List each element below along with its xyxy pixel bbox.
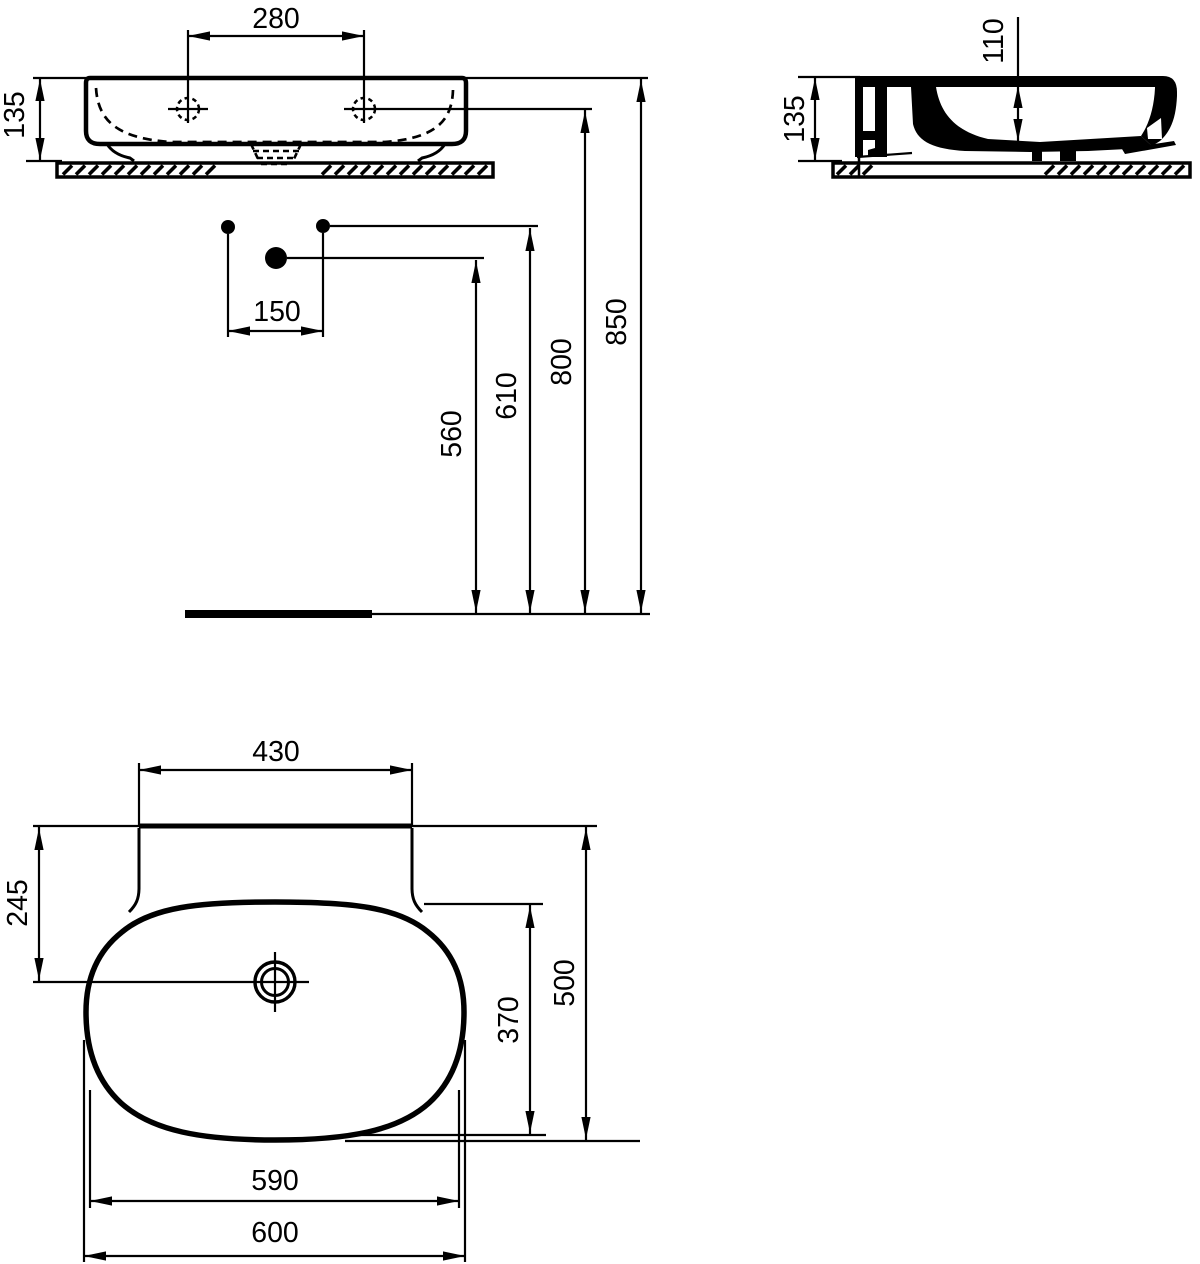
arrowhead: [581, 828, 590, 850]
countertop-hatch-right: [1045, 166, 1184, 175]
dim-basin-height-front: 135: [0, 78, 62, 161]
countertop-hatch-left: [837, 166, 872, 175]
dim-label-135-front: 135: [0, 91, 31, 139]
dim-supply-height: 610: [491, 228, 535, 613]
arrowhead: [90, 1196, 112, 1205]
arrowhead: [471, 261, 480, 283]
dim-bowl-width: 590: [90, 1090, 459, 1208]
arrowhead: [810, 138, 819, 160]
dim-label-135-side: 135: [779, 95, 811, 143]
arrowhead: [390, 765, 412, 774]
arrowhead: [34, 958, 43, 980]
dim-label-280: 280: [252, 3, 300, 35]
drain-dot: [265, 247, 287, 269]
drain-dashed-outline: [251, 144, 301, 164]
ledge-side-left: [129, 828, 139, 912]
drain-symbol: [33, 952, 309, 1012]
drawing-canvas: 280 135 150: [0, 0, 1200, 1264]
dim-label-800: 800: [546, 338, 578, 386]
arrowhead: [188, 31, 210, 40]
washbasin-technical-drawing: 280 135 150: [0, 0, 1200, 1264]
supply-dot-right: [316, 219, 330, 233]
plan-view: 430 245 370 500: [2, 736, 640, 1262]
dim-connection-offset: 150: [228, 296, 323, 336]
dim-bowl-front-to-back: 370: [350, 904, 546, 1135]
dim-overall-width: 600: [84, 1040, 465, 1262]
dim-tap-hole-spacing: 280: [188, 3, 364, 41]
dim-label-150: 150: [253, 296, 301, 328]
side-view: 135 110: [779, 17, 1190, 177]
arrowhead: [35, 138, 44, 160]
arrowhead: [525, 229, 534, 251]
supply-dot-left: [221, 220, 235, 234]
arrowhead: [84, 1251, 106, 1260]
arrowhead: [580, 590, 589, 612]
basin-outline: [86, 78, 466, 144]
dim-back-ledge-width: 430: [139, 736, 412, 826]
arrowhead: [443, 1251, 465, 1260]
arrowhead: [1013, 86, 1022, 108]
dim-label-600: 600: [251, 1217, 299, 1249]
arrowhead: [580, 111, 589, 133]
rim-and-right-wall: [855, 76, 1177, 146]
dim-label-610: 610: [491, 372, 523, 420]
dim-label-370: 370: [493, 996, 525, 1044]
arrowhead: [228, 326, 250, 335]
arrowhead: [34, 828, 43, 850]
countertop-hatch-left: [63, 166, 215, 175]
arrowhead: [437, 1196, 459, 1205]
dim-basin-height-side: 135: [779, 77, 860, 161]
dim-overall-depth: 500: [345, 826, 640, 1141]
arrowhead: [525, 906, 534, 928]
arrowhead: [301, 326, 323, 335]
basin-oval-outline: [86, 902, 464, 1140]
arrowhead: [1013, 119, 1022, 141]
dim-rim-height: 850: [601, 79, 646, 613]
dim-label-850: 850: [601, 298, 633, 346]
bowl-wall-section: [911, 87, 1152, 152]
drain-boss-left: [1032, 150, 1042, 161]
bowl-inner-dashed-contour: [96, 88, 453, 142]
arrowhead: [636, 80, 645, 102]
dim-label-245: 245: [2, 879, 34, 927]
ledge-side-right: [412, 828, 422, 912]
countertop-side: [833, 163, 1190, 177]
arrowhead: [35, 79, 44, 101]
dim-label-560: 560: [436, 410, 468, 458]
arrowhead: [581, 1117, 590, 1139]
dim-back-to-drain: 245: [2, 826, 44, 982]
arrowhead: [810, 78, 819, 100]
arrowhead: [636, 590, 645, 612]
foot-right-curve: [418, 144, 445, 161]
dim-label-110: 110: [978, 18, 1010, 63]
dim-drain-height: 560: [436, 260, 481, 613]
arrowhead: [525, 1111, 534, 1133]
countertop-hatch-right: [322, 166, 487, 175]
arrowhead: [342, 31, 364, 40]
arrowhead: [139, 765, 161, 774]
dim-label-430: 430: [252, 736, 300, 768]
front-view: 280 135 150: [0, 3, 650, 614]
arrowhead: [525, 590, 534, 612]
arrowhead: [471, 590, 480, 612]
dim-tap-hole-height: 800: [546, 110, 590, 613]
drain-boss-right: [1060, 150, 1076, 161]
dim-label-590: 590: [251, 1165, 299, 1197]
dim-label-500: 500: [549, 959, 581, 1007]
foot-left-curve: [107, 144, 134, 161]
